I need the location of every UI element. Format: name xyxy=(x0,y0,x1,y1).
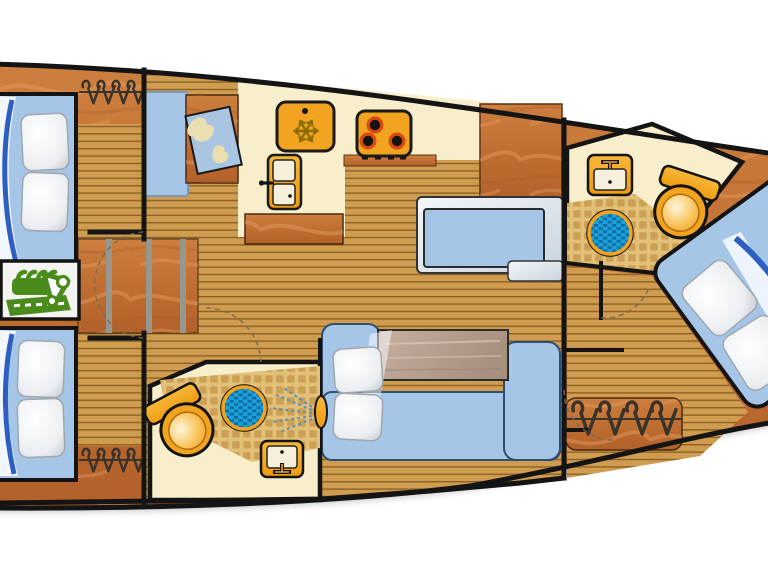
galley-island-table xyxy=(245,214,343,244)
drain-icon xyxy=(221,385,267,431)
upper-settee xyxy=(417,197,563,281)
settee-pillow xyxy=(333,393,383,441)
center-head xyxy=(142,362,327,500)
nav-seat xyxy=(144,92,188,196)
engine-compartment xyxy=(1,261,79,319)
aft-cabin-plank-floor xyxy=(77,330,144,446)
boat-floor-plan xyxy=(0,0,768,576)
berth-pillow xyxy=(21,172,69,232)
sink xyxy=(261,441,303,477)
floor-plan-svg xyxy=(0,0,768,576)
aft-port-berth xyxy=(0,328,76,480)
companionway-steps xyxy=(78,239,198,333)
berth-pillow xyxy=(21,113,70,171)
engine-icon xyxy=(6,272,71,316)
lower-settee xyxy=(322,324,560,460)
sink xyxy=(588,155,632,195)
berth-pillow xyxy=(17,398,65,458)
saloon-table xyxy=(378,330,508,380)
berth-pillow xyxy=(17,340,65,398)
settee-pillow xyxy=(333,346,384,393)
fridge xyxy=(277,102,334,151)
shower-head-icon xyxy=(315,396,327,428)
stove xyxy=(357,111,411,160)
forward-berth xyxy=(0,94,76,268)
drain-icon xyxy=(587,210,633,256)
